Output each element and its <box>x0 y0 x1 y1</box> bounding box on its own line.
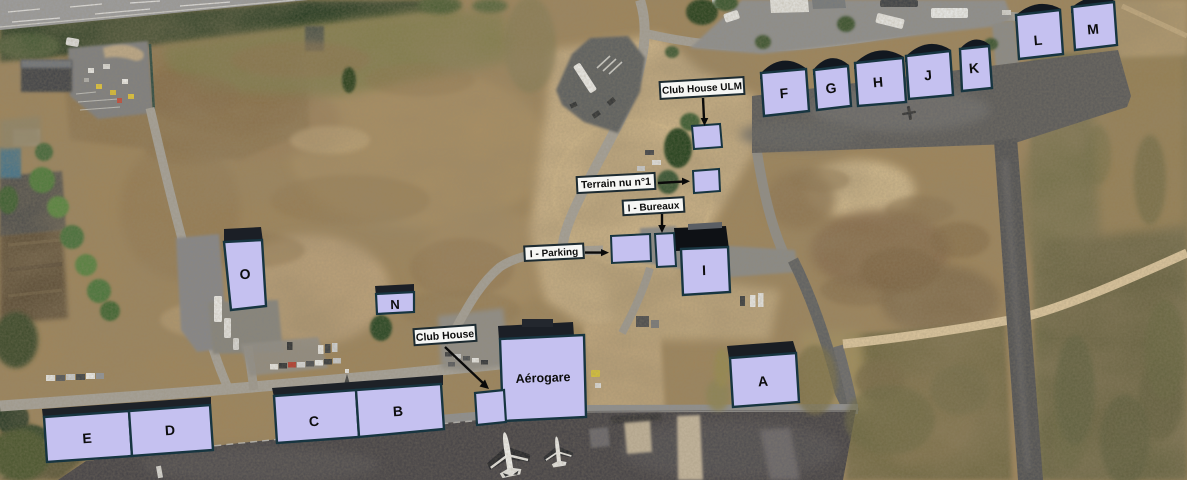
svg-text:A: A <box>757 373 768 390</box>
svg-text:O: O <box>239 266 251 282</box>
svg-text:D: D <box>164 422 175 439</box>
svg-text:H: H <box>872 74 883 91</box>
svg-text:G: G <box>825 80 837 97</box>
svg-text:K: K <box>968 60 979 77</box>
svg-text:C: C <box>308 413 319 430</box>
svg-text:J: J <box>923 67 932 84</box>
svg-text:E: E <box>82 430 92 447</box>
svg-text:M: M <box>1086 21 1099 38</box>
svg-text:I: I <box>702 262 706 278</box>
svg-text:N: N <box>390 297 400 312</box>
svg-text:Aérogare: Aérogare <box>515 370 570 386</box>
svg-text:B: B <box>392 403 403 420</box>
